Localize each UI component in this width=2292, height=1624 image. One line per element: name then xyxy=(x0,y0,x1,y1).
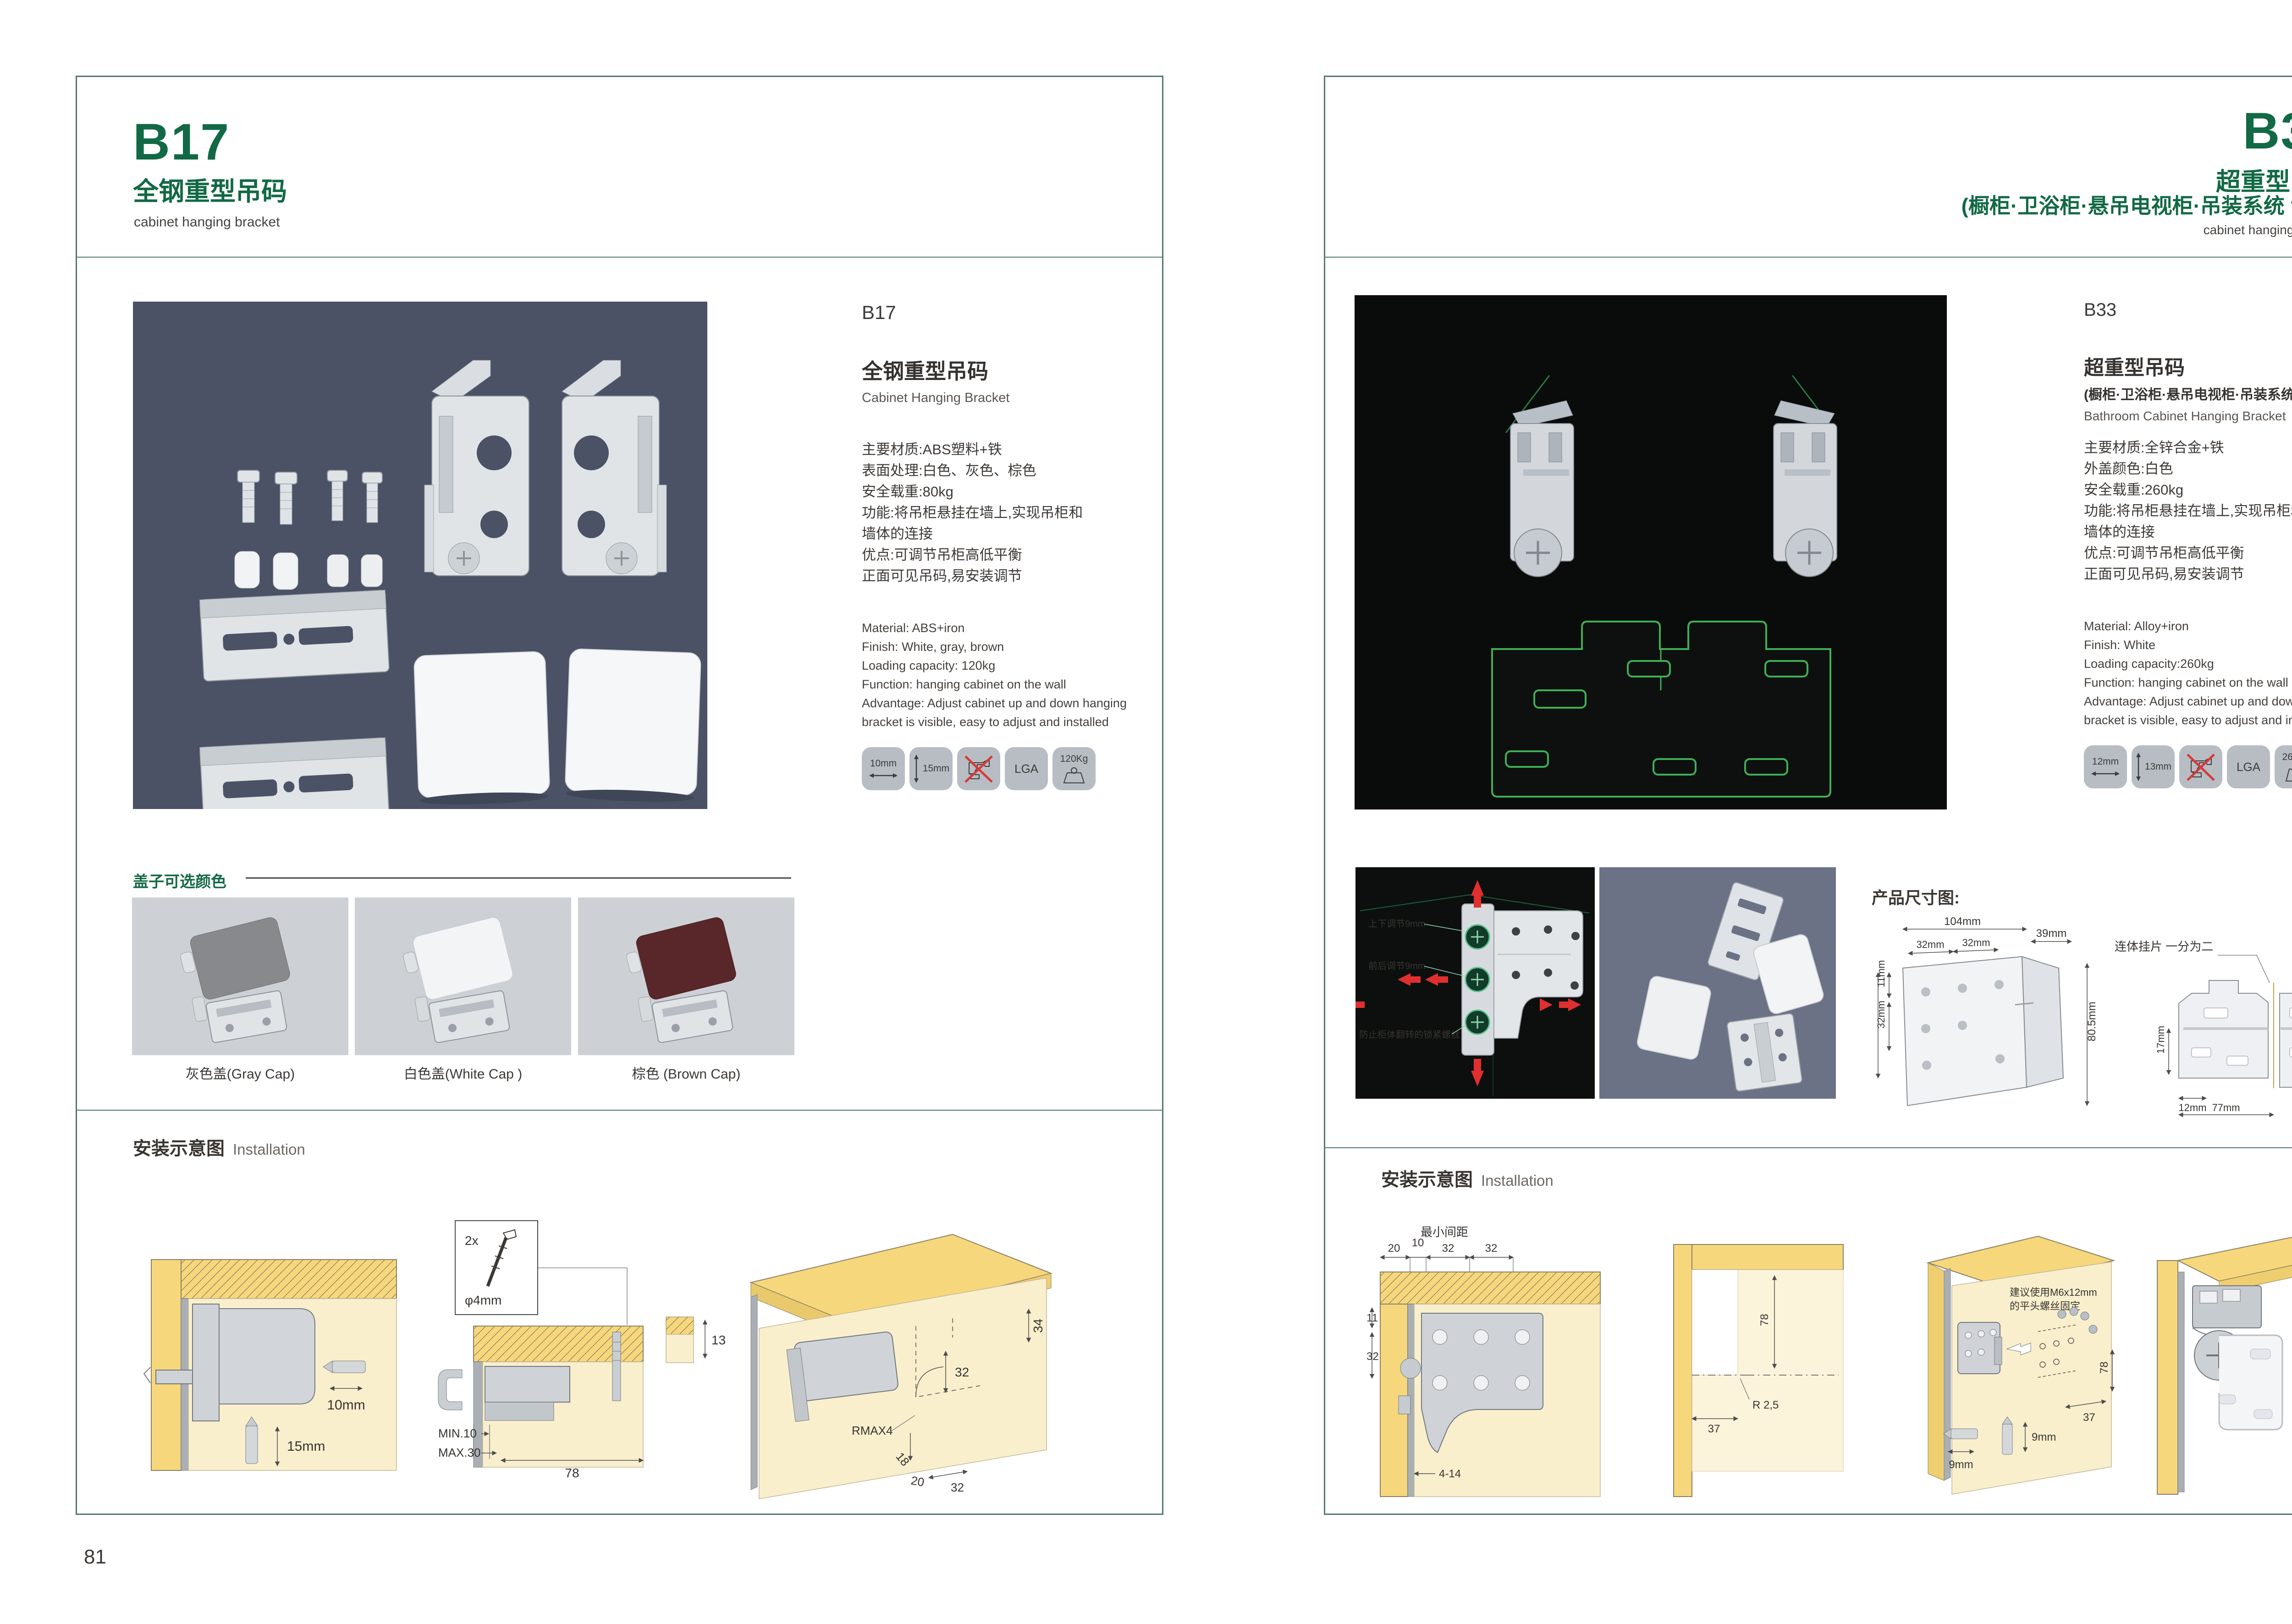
page-right-content: B33 超重型吊码 (橱柜·卫浴柜·悬吊电视柜·吊装系统 专用) Bathroo… xyxy=(1325,258,2292,1146)
vertical-arrow-icon xyxy=(2135,753,2142,781)
cert-label: LGA xyxy=(1014,762,1038,776)
cap-label-brown: 棕色 (Brown Cap) xyxy=(578,1062,794,1083)
product-title-cn: 全钢重型吊码 xyxy=(133,177,287,206)
dim-32b: 32 xyxy=(1485,1242,1498,1255)
install-diagram-holes: 最小间距 20 10 32 32 xyxy=(1366,1217,1614,1508)
detail-name-cn: 超重型吊码 xyxy=(2084,351,2292,380)
bracket-left xyxy=(1510,401,1574,577)
spec-line: Finish: White, gray, brown xyxy=(862,638,1127,656)
icon-tile-cert: LGA xyxy=(2227,745,2270,788)
dim-4-14: 4-14 xyxy=(1439,1468,1461,1480)
dim-78b: 78 xyxy=(2098,1361,2110,1374)
specs-en: Material: ABS+iron Finish: White, gray, … xyxy=(862,619,1127,732)
spec-line: Advantage: Adjust cabinet up and down ha… xyxy=(2084,692,2292,711)
spec-line: 表面处理:白色、灰色、棕色 xyxy=(862,460,1083,481)
dim-20: 20 xyxy=(1388,1242,1400,1255)
width-value: 10mm xyxy=(870,758,897,769)
wall-rail-1 xyxy=(200,590,390,681)
exploded-parts-photo xyxy=(1599,867,1836,1099)
dims-drawing-plates: 连体挂片 一分为二 55mm 55mm 39mm 8mm 1 xyxy=(2110,919,2292,1120)
dim-12mm: 12mm xyxy=(2178,1102,2206,1113)
spec-line: 主要材质:ABS塑料+铁 xyxy=(862,439,1083,460)
spec-line: Function: hanging cabinet on the wall xyxy=(2084,673,2292,692)
install-diagram-screw: 2x φ4mm MIN.10 MAX.30 xyxy=(430,1209,648,1496)
dim-max30: MAX.30 xyxy=(438,1446,481,1459)
spec-line: Material: ABS+iron xyxy=(862,619,1127,638)
product-photo-b33 xyxy=(1355,295,1947,809)
product-title-en: cabinet hanging bracket xyxy=(2204,223,2292,237)
dim-32mm-a: 32mm xyxy=(1916,939,1944,950)
dim-rmax4: RMAX4 xyxy=(852,1424,893,1437)
lbl-minspacing: 最小间距 xyxy=(1421,1225,1468,1239)
icon-tile-no-drill xyxy=(957,747,1000,790)
spec-line: 正面可见吊码,易安装调节 xyxy=(2084,564,2292,585)
spec-line: Material: Alloy+iron xyxy=(2084,617,2292,636)
dim-20: 20 xyxy=(910,1473,926,1489)
spec-line: 优点:可调节吊柜高低平衡 xyxy=(862,545,1083,566)
dim-37: 37 xyxy=(1708,1423,1720,1435)
cap-image-brown xyxy=(578,897,794,1055)
installation-title-en: Installation xyxy=(1481,1172,1554,1189)
page-left-header: B17 全钢重型吊码 cabinet hanging bracket xyxy=(77,77,1162,257)
spec-line: 功能:将吊柜悬挂在墙上,实现吊柜和 xyxy=(862,502,1083,523)
white-cap-2 xyxy=(565,649,701,804)
annot-lockscrew: 防止柜体翻转的锁紧螺丝 xyxy=(1359,1029,1460,1040)
width-value: 12mm xyxy=(2092,756,2119,767)
dim-9mm-a: 9mm xyxy=(1949,1459,1973,1471)
product-code-heading: B17 xyxy=(133,116,230,168)
weight-icon xyxy=(1061,767,1087,784)
dim-32mm-b: 32mm xyxy=(1962,937,1990,948)
dim-32a: 32 xyxy=(955,1365,969,1379)
spec-line: 墙体的连接 xyxy=(2084,522,2292,543)
spec-line: Function: hanging cabinet on the wall xyxy=(862,675,1127,694)
dim-51mm: 51mm xyxy=(1875,1000,1876,1028)
caps-section-rule xyxy=(246,877,791,879)
dim-17mm: 17mm xyxy=(2155,1026,2166,1054)
load-value: 120Kg xyxy=(1060,754,1088,765)
icon-tile-height: 15mm xyxy=(909,747,953,790)
dim-78: 78 xyxy=(1758,1314,1771,1326)
load-value: 260Kg xyxy=(2282,752,2292,763)
dim-15mm: 15mm xyxy=(287,1439,325,1454)
attribute-icon-row: 10mm 15mm xyxy=(862,747,1096,790)
dim-77mm: 77mm xyxy=(2212,1102,2240,1113)
white-cap-1 xyxy=(414,651,550,806)
dim-37b: 37 xyxy=(2083,1411,2095,1424)
spec-line: Advantage: Adjust cabinet up and down ha… xyxy=(862,694,1127,713)
spec-line: bracket is visible, easy to adjust and i… xyxy=(862,713,1127,732)
spec-line: 外盖颜色:白色 xyxy=(2084,458,2292,479)
dim-78: 78 xyxy=(565,1466,579,1480)
height-value: 13mm xyxy=(2145,761,2171,772)
dim-11: 11 xyxy=(1366,1312,1378,1324)
dim-9mm-b: 9mm xyxy=(2032,1431,2056,1443)
cap-image-gray xyxy=(132,897,348,1055)
weight-icon xyxy=(2283,765,2292,782)
detail-names: 超重型吊码 (橱柜·卫浴柜·悬吊电视柜·吊装系统 专用) Bathroom Ca… xyxy=(2084,351,2292,424)
page-left-content: B17 全钢重型吊码 Cabinet Hanging Bracket 主要材质:… xyxy=(77,258,1162,1110)
icon-tile-load: 120Kg xyxy=(1052,747,1096,790)
no-drill-icon xyxy=(2186,752,2216,782)
cap-label-white: 白色盖(White Cap ) xyxy=(355,1062,571,1083)
detail-name-cn2: (橱柜·卫浴柜·悬吊电视柜·吊装系统 专用) xyxy=(2084,383,2292,403)
screw-qty: 2x xyxy=(465,1233,479,1248)
installation-title-en: Installation xyxy=(233,1141,305,1158)
cap-image-white xyxy=(355,897,571,1055)
dim-104mm: 104mm xyxy=(1944,915,1981,928)
spec-line: 正面可见吊码,易安装调节 xyxy=(862,566,1083,587)
spec-line: 优点:可调节吊柜高低平衡 xyxy=(2084,543,2292,564)
dim-39mm: 39mm xyxy=(2036,927,2067,940)
dim-r25: R 2,5 xyxy=(1752,1399,1779,1411)
vertical-arrow-icon xyxy=(913,754,920,783)
product-subtitle-cn: (橱柜·卫浴柜·悬吊电视柜·吊装系统 专用) xyxy=(1961,193,2292,219)
install-diagram-mounting: 建议使用M6x12mm 的平头螺丝固定 37 xyxy=(1901,1217,2121,1508)
icon-tile-cert: LGA xyxy=(1005,747,1048,790)
annot-updown: 上下调节9mm xyxy=(1368,919,1425,929)
product-title-en: cabinet hanging bracket xyxy=(134,215,280,230)
caps-section-title: 盖子可选颜色 xyxy=(133,869,226,892)
icon-tile-no-drill xyxy=(2179,745,2222,788)
spec-line: Loading capacity: 120kg xyxy=(862,656,1127,675)
plates-label: 连体挂片 一分为二 xyxy=(2115,940,2213,953)
installation-heading: 安装示意图 Installation xyxy=(1381,1165,1554,1191)
detail-name-cn: 全钢重型吊码 xyxy=(862,355,1009,385)
height-value: 15mm xyxy=(923,763,949,774)
wall-rail-2 xyxy=(200,738,390,809)
install-diagram-crosssection: 10mm 15mm xyxy=(138,1234,424,1496)
spec-line: 主要材质:全锌合金+铁 xyxy=(2084,437,2292,458)
screw-size: φ4mm xyxy=(465,1293,501,1307)
note-screw-1: 建议使用M6x12mm xyxy=(2010,1287,2097,1298)
catalog-page-right: B33 超重型吊码 (橱柜·卫浴柜·悬吊电视柜·吊装系统 专用) cabinet… xyxy=(1324,76,2292,1515)
detail-name-en: Bathroom Cabinet Hanging Bracket xyxy=(2084,409,2292,424)
product-code-heading: B33 xyxy=(2243,105,2292,157)
horizontal-arrow-icon xyxy=(869,772,898,779)
spec-line: 墙体的连接 xyxy=(862,523,1083,545)
installation-title-cn: 安装示意图 xyxy=(1381,1165,1473,1191)
adjustment-photo: 上下调节9mm 前后调节9mm 防止柜体翻转的锁紧螺丝 xyxy=(1355,867,1595,1099)
detail-names: 全钢重型吊码 Cabinet Hanging Bracket xyxy=(862,355,1009,406)
attribute-icon-row: 12mm 13mm xyxy=(2084,745,2292,788)
dim-32a: 32 xyxy=(1442,1242,1455,1255)
product-title-cn: 超重型吊码 xyxy=(2216,161,2292,198)
detail-code: B33 xyxy=(2084,300,2116,320)
catalog-page-left: B17 全钢重型吊码 cabinet hanging bracket xyxy=(76,76,1163,1515)
detail-name-en: Cabinet Hanging Bracket xyxy=(862,391,1009,406)
page-right-installation: 安装示意图 Installation 最小间距 20 10 32 32 xyxy=(1325,1148,2292,1515)
spec-line: 安全载重:260kg xyxy=(2084,479,2292,501)
specs-cn: 主要材质:ABS塑料+铁 表面处理:白色、灰色、棕色 安全载重:80kg 功能:… xyxy=(862,439,1083,587)
dim-10mm: 10mm xyxy=(327,1398,365,1413)
horizontal-arrow-icon xyxy=(2091,770,2120,777)
detail-code: B17 xyxy=(862,302,896,324)
page-number-left: 81 xyxy=(84,1546,106,1569)
dim-13: 13 xyxy=(711,1333,726,1347)
spec-line: bracket is visible, easy to adjust and i… xyxy=(2084,711,2292,730)
dim-34: 34 xyxy=(1031,1319,1045,1333)
dim-10: 10 xyxy=(1412,1237,1424,1249)
dims-section-title: 产品尺寸图: xyxy=(1872,885,1960,908)
annot-frontback: 前后调节9mm xyxy=(1368,961,1425,971)
page-right-header: B33 超重型吊码 (橱柜·卫浴柜·悬吊电视柜·吊装系统 专用) cabinet… xyxy=(1325,77,2292,257)
dim-32c: 32 xyxy=(1366,1350,1379,1363)
dim-80-5mm: 80.5mm xyxy=(2086,1002,2098,1041)
dims-drawing-bracket: 104mm 39mm 32mm 32mm 80.5mm 11mm 32mm 51… xyxy=(1875,913,2105,1119)
spec-line: 安全载重:80kg xyxy=(862,481,1083,502)
install-diagram-mounted xyxy=(2150,1217,2292,1508)
no-drill-icon xyxy=(964,754,994,784)
product-photo-b17 xyxy=(133,302,707,809)
install-diagram-niche: 78 R 2,5 37 xyxy=(1664,1217,1852,1508)
page-left-installation: 安装示意图 Installation 10mm 15mm xyxy=(77,1111,1162,1515)
dim-32b: 32 xyxy=(951,1481,964,1494)
bracket-right xyxy=(1774,401,1837,577)
icon-tile-height: 13mm xyxy=(2132,745,2175,788)
dim-min10: MIN.10 xyxy=(438,1426,477,1440)
specs-en: Material: Alloy+iron Finish: White Loadi… xyxy=(2084,617,2292,730)
specs-cn: 主要材质:全锌合金+铁 外盖颜色:白色 安全载重:260kg 功能:将吊柜悬挂在… xyxy=(2084,437,2292,585)
spec-line: Loading capacity:260kg xyxy=(2084,655,2292,673)
installation-title-cn: 安装示意图 xyxy=(133,1134,225,1160)
icon-tile-width: 12mm xyxy=(2084,745,2127,788)
dim-11mm: 11mm xyxy=(1875,960,1887,988)
spec-line: 功能:将吊柜悬挂在墙上,实现吊柜和 xyxy=(2084,501,2292,522)
spec-line: Finish: White xyxy=(2084,636,2292,655)
icon-tile-width: 10mm xyxy=(862,747,905,790)
cert-label: LGA xyxy=(2237,760,2260,774)
dim-32mm-c: 32mm xyxy=(1875,1001,1887,1029)
installation-heading: 安装示意图 Installation xyxy=(133,1134,305,1160)
icon-tile-load: 260Kg xyxy=(2275,745,2292,788)
cap-label-gray: 灰色盖(Gray Cap) xyxy=(132,1062,348,1083)
install-diagram-3d: 13 34 32 RMAX4 18 20 xyxy=(659,1200,1063,1503)
